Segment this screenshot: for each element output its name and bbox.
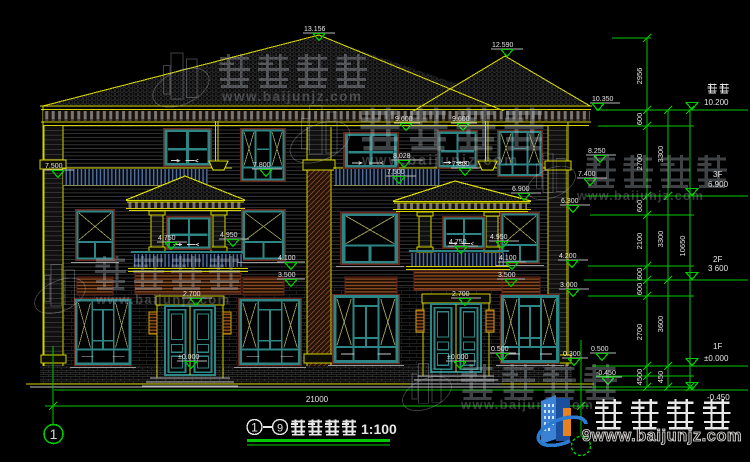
svg-text:±0.000: ±0.000 [178,354,199,361]
svg-text:6.900: 6.900 [512,186,530,193]
svg-text:8.250: 8.250 [588,148,606,155]
svg-text:4.950: 4.950 [220,232,238,239]
svg-text:7.400: 7.400 [578,171,596,178]
svg-text:600: 600 [635,113,644,126]
svg-text:2700: 2700 [635,154,644,171]
svg-text:www.baijunjz.com: www.baijunjz.com [95,292,231,307]
svg-text:9: 9 [277,423,283,435]
svg-text:2956: 2956 [635,68,644,85]
svg-text:600: 600 [635,283,644,296]
svg-text:10.350: 10.350 [592,96,614,103]
svg-text:9www.baijunjz.com: 9www.baijunjz.com [582,427,742,445]
svg-text:4.100: 4.100 [278,255,296,262]
svg-text:4.750: 4.750 [158,235,176,242]
svg-text:10650: 10650 [678,236,687,257]
svg-text:7.500: 7.500 [45,163,63,170]
svg-text:10.200: 10.200 [704,98,729,107]
svg-text:4.200: 4.200 [559,253,577,260]
svg-text:600: 600 [635,268,644,281]
svg-text:3.500: 3.500 [278,272,296,279]
svg-text:1:100: 1:100 [361,421,397,437]
svg-text:3 600: 3 600 [708,264,729,273]
svg-text:1: 1 [50,426,58,442]
svg-text:7.800: 7.800 [253,162,271,169]
svg-text:450: 450 [656,371,665,384]
svg-text:13.156: 13.156 [304,26,326,33]
svg-text:0.300: 0.300 [563,351,581,358]
svg-text:4.100: 4.100 [499,255,517,262]
svg-text:2100: 2100 [635,233,644,250]
svg-text:3.500: 3.500 [498,272,516,279]
svg-text:12.590: 12.590 [492,42,514,49]
svg-text:4500: 4500 [635,369,644,386]
svg-text:www.baijunjz.com: www.baijunjz.com [576,189,704,203]
svg-text:1F: 1F [713,342,722,351]
svg-text:3.000: 3.000 [560,282,578,289]
svg-text:7.500: 7.500 [387,169,405,176]
svg-text:2F: 2F [713,255,722,264]
svg-text:4.950: 4.950 [490,234,508,241]
svg-text:21000: 21000 [306,395,329,404]
svg-text:www.baijunjz.com: www.baijunjz.com [221,89,363,104]
svg-text:6.300: 6.300 [561,198,579,205]
svg-text:3300: 3300 [656,231,665,248]
svg-text:2700: 2700 [635,324,644,341]
svg-text:0.500: 0.500 [491,346,509,353]
svg-text:1: 1 [251,421,258,435]
svg-text:2.700: 2.700 [452,291,470,298]
svg-text:3600: 3600 [656,316,665,333]
svg-text:0.500: 0.500 [591,346,609,353]
svg-text:±0.000: ±0.000 [447,354,468,361]
svg-text:www.baijunjz.com: www.baijunjz.com [460,397,594,412]
svg-text:www.baijunjz.com: www.baijunjz.com [361,153,519,169]
svg-text:±0.000: ±0.000 [704,354,729,363]
svg-text:4.750: 4.750 [449,239,467,246]
